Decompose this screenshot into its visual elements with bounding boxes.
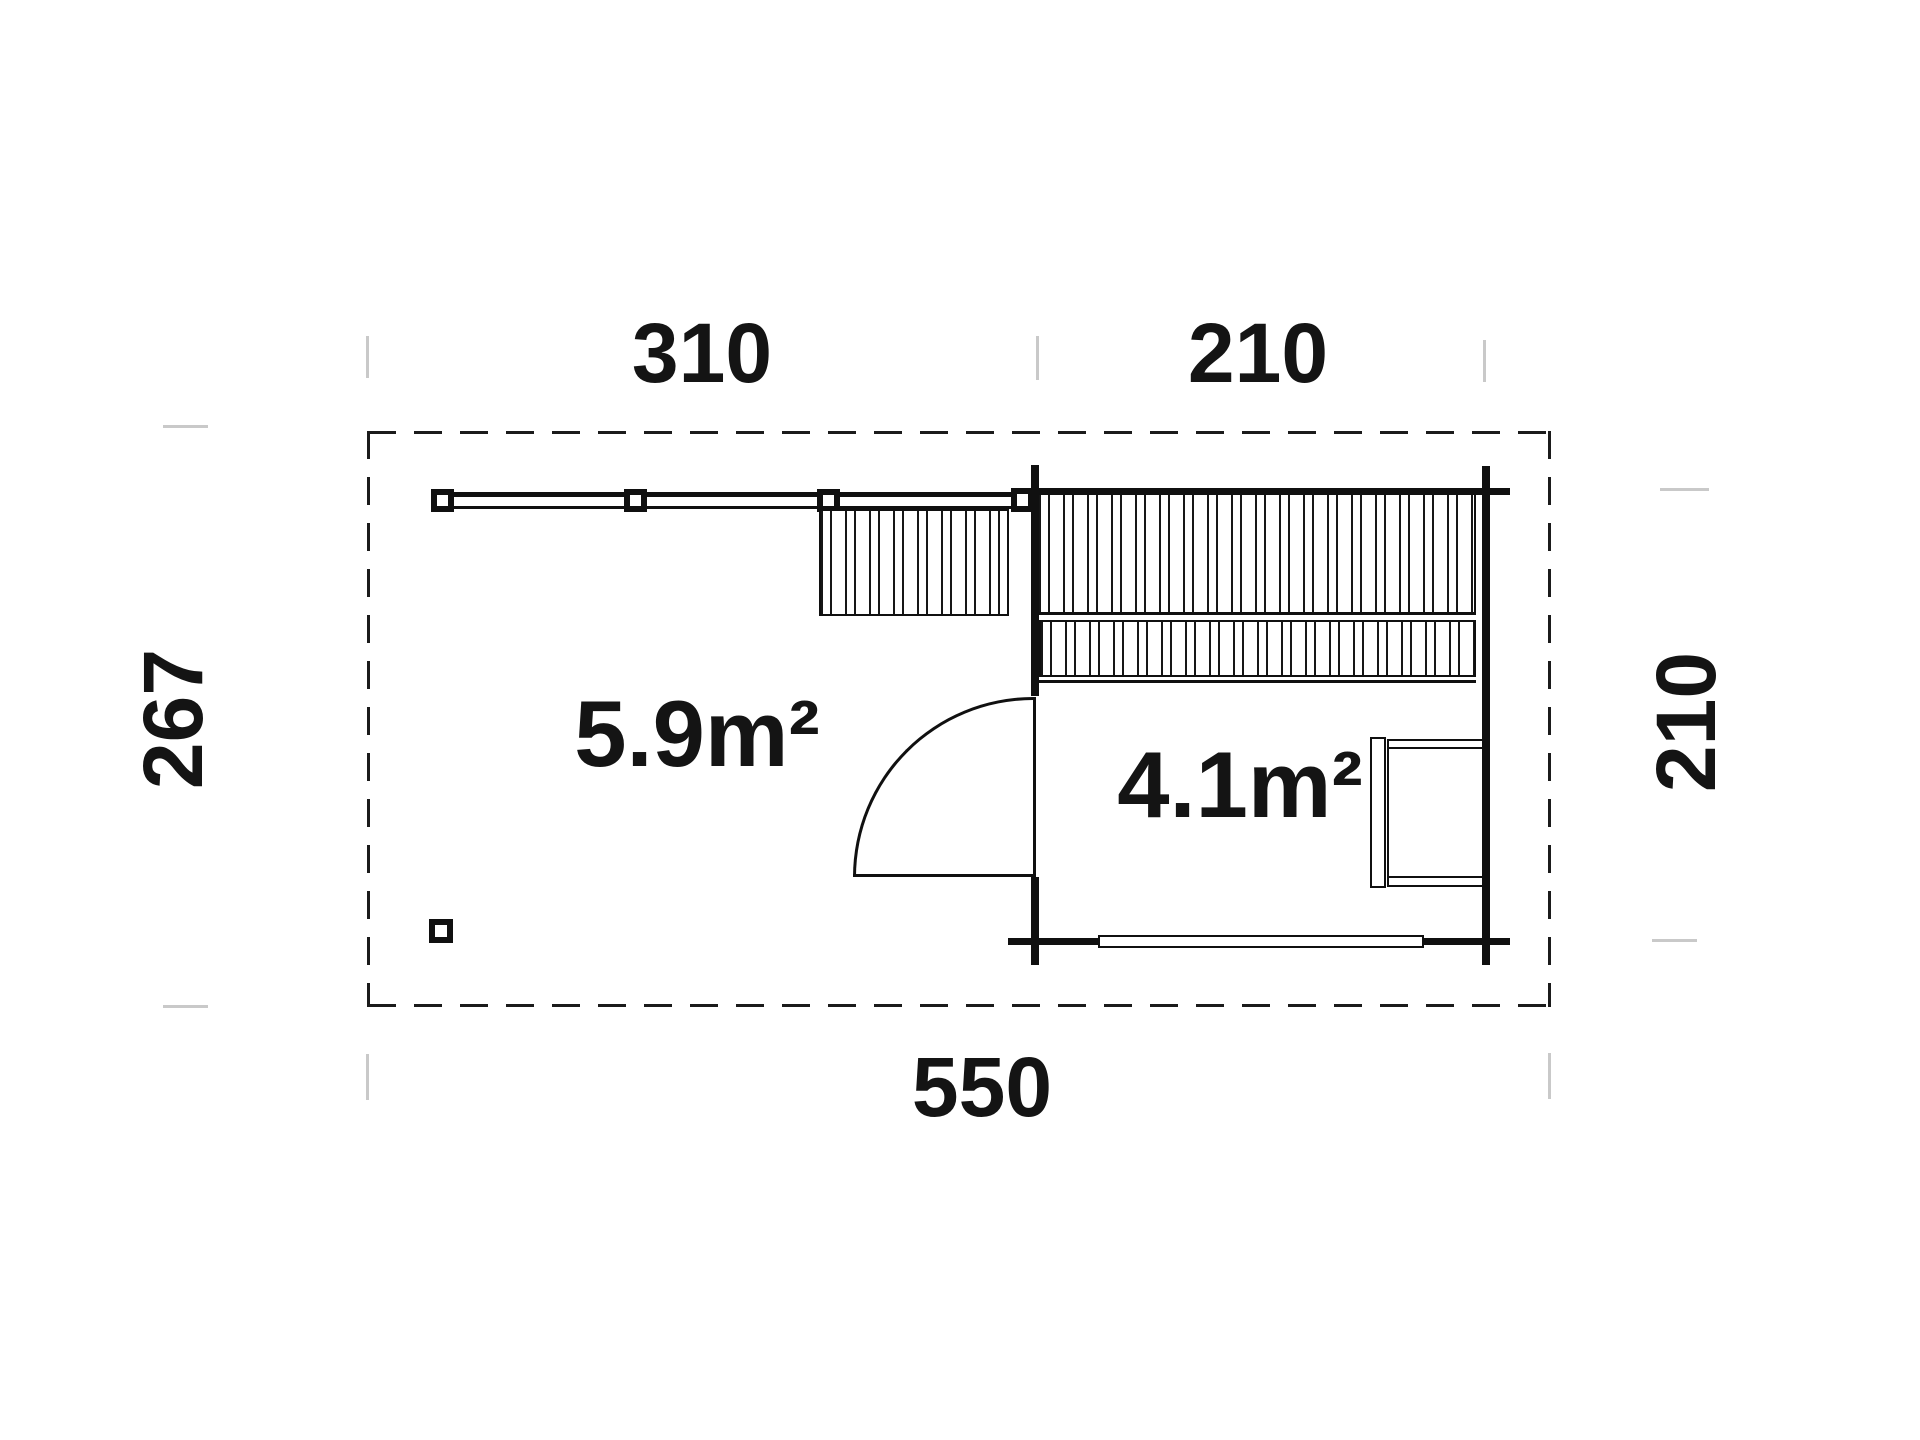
door-swing-arc	[853, 697, 1033, 877]
terrace-corner-post	[429, 919, 453, 943]
side-bench-bottom-line	[1389, 876, 1482, 878]
plot-boundary-left	[367, 431, 370, 1007]
railing-bar	[454, 492, 624, 509]
railing-bar	[840, 492, 1011, 509]
side-bench	[1387, 739, 1484, 887]
bench-hatch-baseline	[1039, 680, 1476, 683]
plot-boundary-top	[368, 431, 1551, 434]
railing-post	[431, 489, 454, 512]
wall-bottom-left-segment	[1008, 938, 1102, 945]
door-jamb-line	[1033, 697, 1036, 877]
wall-top	[1031, 488, 1510, 495]
dim-label-total-width: 550	[912, 1045, 1052, 1129]
dim-tick-top-right	[1483, 340, 1486, 382]
window	[1098, 935, 1424, 948]
dim-tick-bottom-left	[366, 1054, 369, 1100]
dim-label-width-right: 210	[1188, 311, 1328, 395]
dim-tick-left-upper	[163, 425, 208, 428]
side-bench-top-line	[1389, 747, 1482, 749]
dim-label-height-left: 267	[131, 649, 215, 789]
dim-tick-top-left	[366, 336, 369, 378]
bench-hatch-lower	[1039, 620, 1476, 677]
dim-label-width-left: 310	[632, 311, 772, 395]
side-bench-edge	[1370, 737, 1386, 888]
bench-hatch-upper	[1039, 495, 1476, 615]
area-label-terrace: 5.9m²	[574, 687, 820, 781]
dim-label-height-right: 210	[1644, 652, 1728, 792]
deck-hatch-terrace	[819, 509, 1009, 616]
wall-middle-lower	[1031, 877, 1039, 965]
dim-tick-top-middle	[1036, 336, 1039, 380]
dim-tick-left-lower	[163, 1005, 208, 1008]
wall-bottom-right-segment	[1420, 938, 1510, 945]
plot-boundary-right	[1548, 431, 1551, 1007]
area-label-room: 4.1m²	[1117, 738, 1363, 832]
floor-plan-canvas: 310 210 267 210 550 5.9m² 4.1m²	[0, 0, 1920, 1440]
railing-post	[624, 489, 647, 512]
dim-tick-bottom-right	[1548, 1053, 1551, 1099]
dim-tick-right-upper	[1660, 488, 1709, 491]
plot-boundary-bottom	[368, 1004, 1551, 1007]
wall-middle-upper	[1031, 465, 1039, 696]
railing-bar	[647, 492, 817, 509]
dim-tick-right-lower	[1652, 939, 1697, 942]
wall-right	[1482, 466, 1490, 965]
